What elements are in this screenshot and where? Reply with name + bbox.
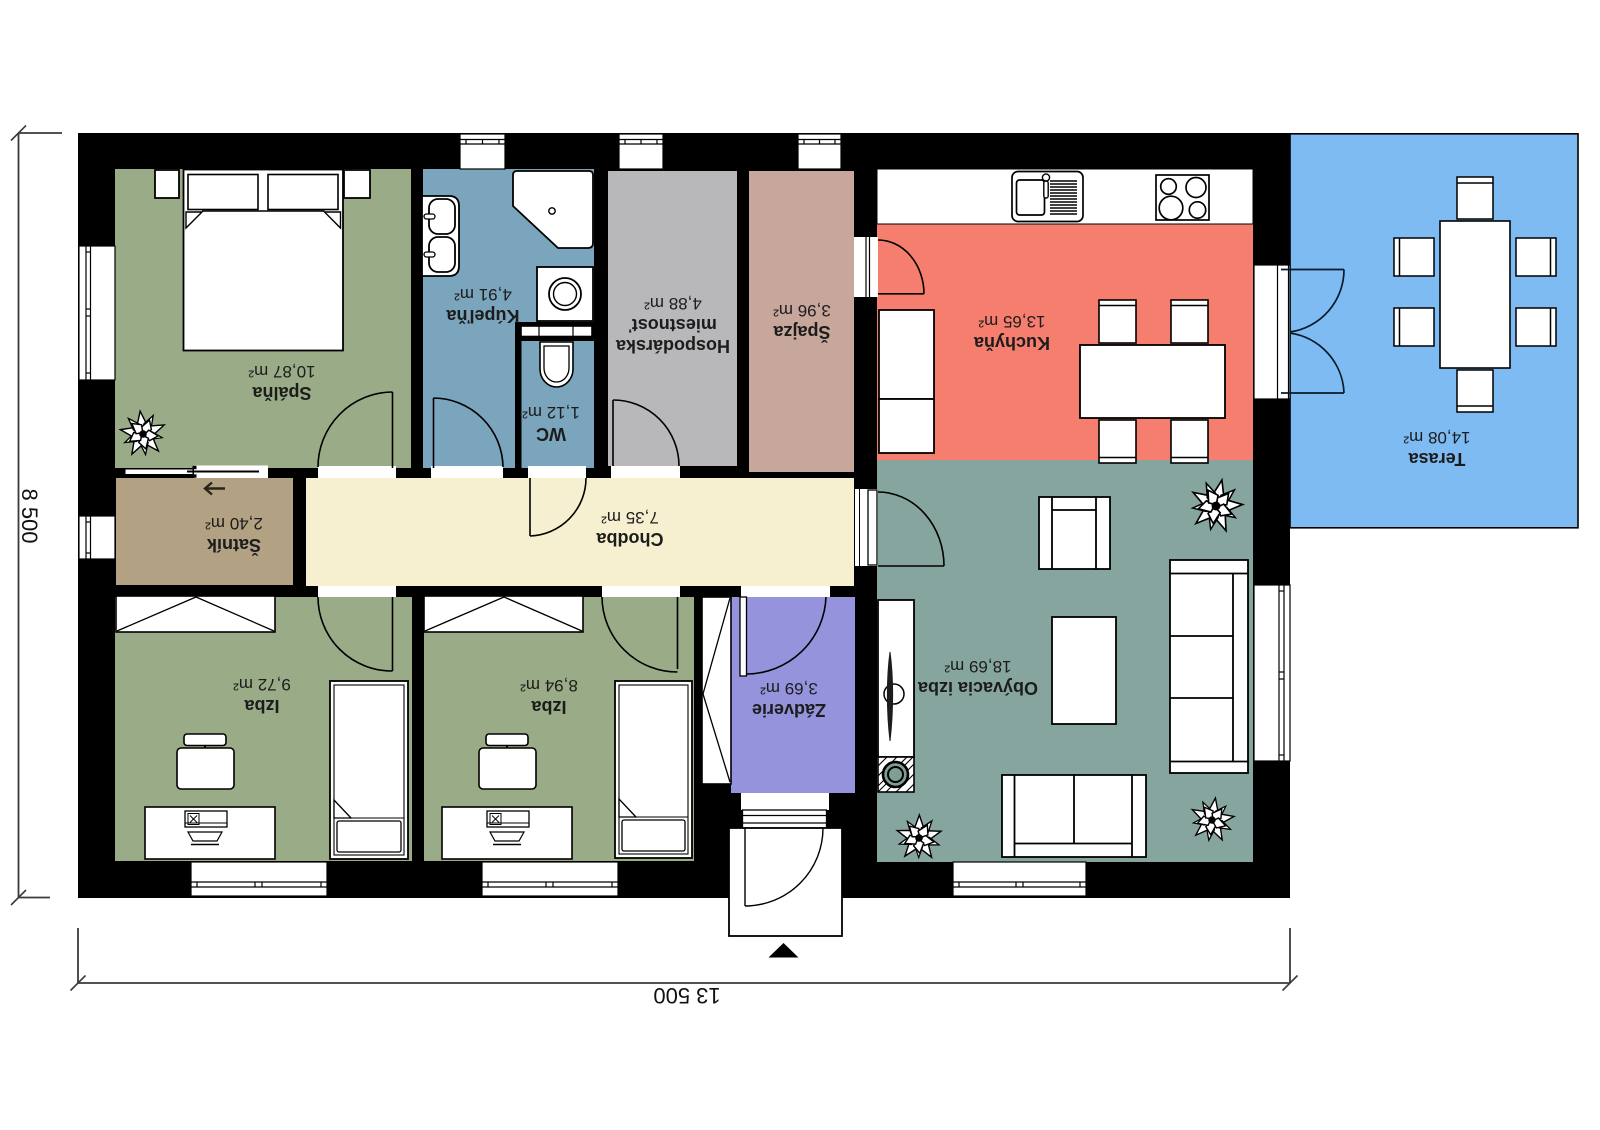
svg-text:Izba: Izba [244,696,280,716]
svg-text:3,96 m²: 3,96 m² [773,301,831,320]
svg-text:Šatník: Šatník [206,535,261,556]
svg-text:Hospodárska: Hospodárska [615,336,730,356]
svg-text:8,94 m²: 8,94 m² [520,676,578,695]
svg-text:9,72 m²: 9,72 m² [233,675,291,694]
svg-text:1,12 m²: 1,12 m² [522,403,580,422]
svg-text:Chodba: Chodba [596,529,664,549]
svg-text:7,35 m²: 7,35 m² [601,508,659,527]
svg-text:WC: WC [536,424,566,444]
svg-text:8 500: 8 500 [17,488,42,543]
svg-text:Izba: Izba [531,697,567,717]
svg-text:18,69 m²: 18,69 m² [944,657,1011,676]
svg-text:Kúpeľňa: Kúpeľňa [446,306,520,326]
svg-text:Zádverie: Zádverie [752,700,826,720]
svg-text:14,08 m²: 14,08 m² [1403,428,1470,447]
svg-text:13 500: 13 500 [653,983,720,1008]
svg-text:Obývacia izba: Obývacia izba [917,678,1038,698]
svg-text:Terasa: Terasa [1408,449,1466,469]
svg-text:4,88 m²: 4,88 m² [644,294,702,313]
svg-text:4,91 m²: 4,91 m² [454,285,512,304]
svg-text:10,87 m²: 10,87 m² [248,362,315,381]
svg-text:Špajza: Špajza [773,322,831,343]
svg-text:Kuchyňa: Kuchyňa [973,333,1050,353]
svg-text:2,40 m²: 2,40 m² [205,514,263,533]
svg-text:Spálňa: Spálňa [252,383,312,403]
svg-text:3,69 m²: 3,69 m² [760,679,818,698]
svg-text:13,65 m²: 13,65 m² [978,312,1045,331]
svg-text:miestnosť: miestnosť [629,315,717,335]
